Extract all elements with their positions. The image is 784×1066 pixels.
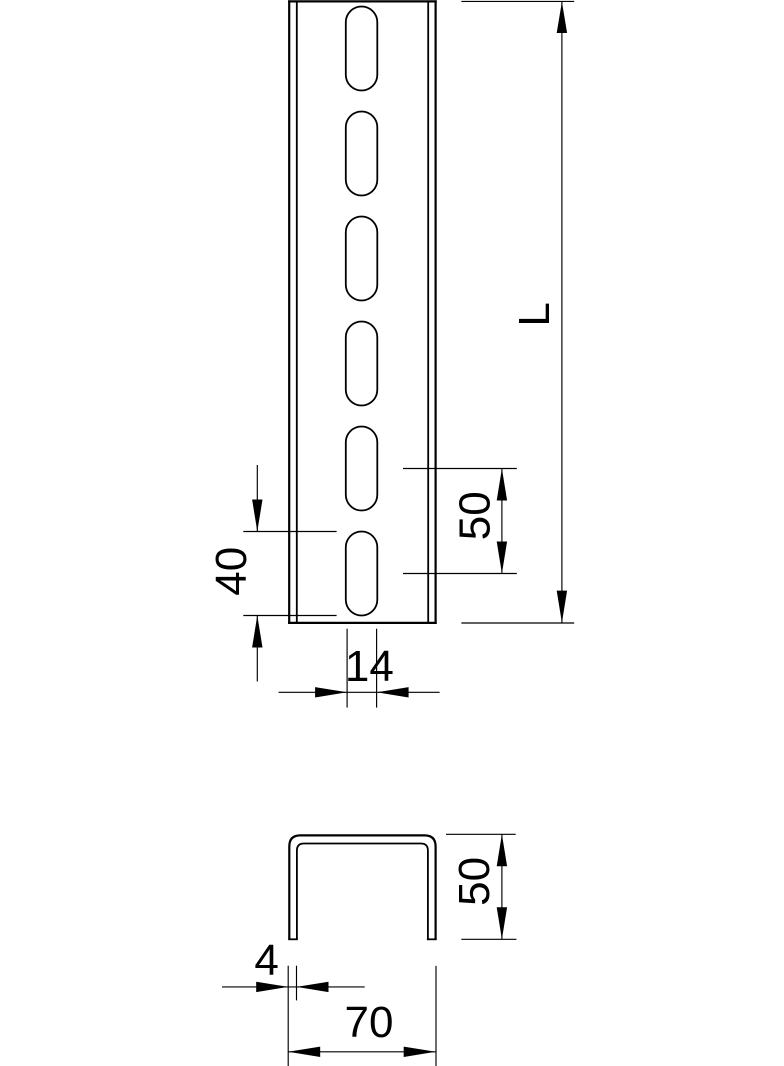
svg-text:4: 4	[254, 936, 278, 985]
svg-text:70: 70	[345, 998, 394, 1047]
svg-text:50: 50	[451, 491, 500, 540]
svg-text:L: L	[510, 302, 559, 326]
svg-text:14: 14	[345, 642, 394, 691]
svg-text:40: 40	[207, 547, 256, 596]
svg-text:50: 50	[450, 857, 499, 906]
